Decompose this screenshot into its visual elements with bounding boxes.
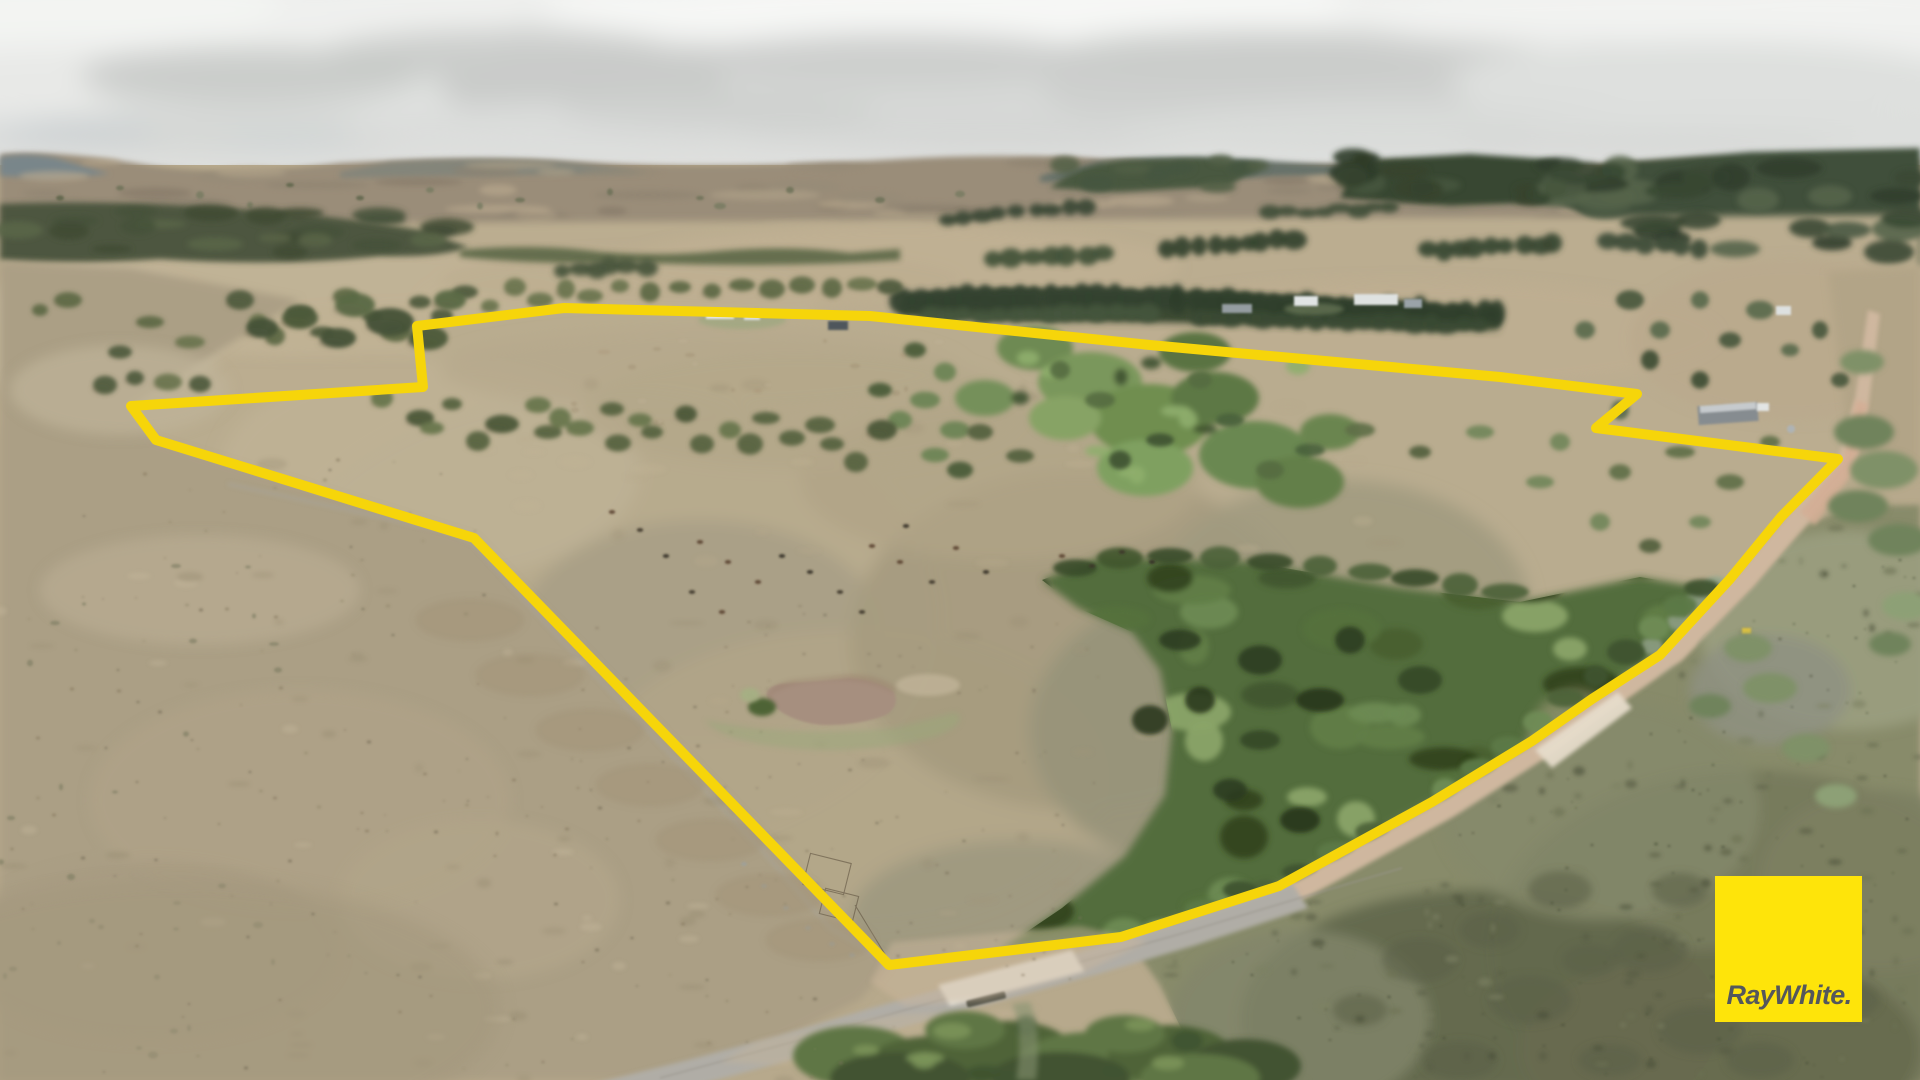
svg-text:RayWhite.: RayWhite.	[1726, 980, 1851, 1010]
